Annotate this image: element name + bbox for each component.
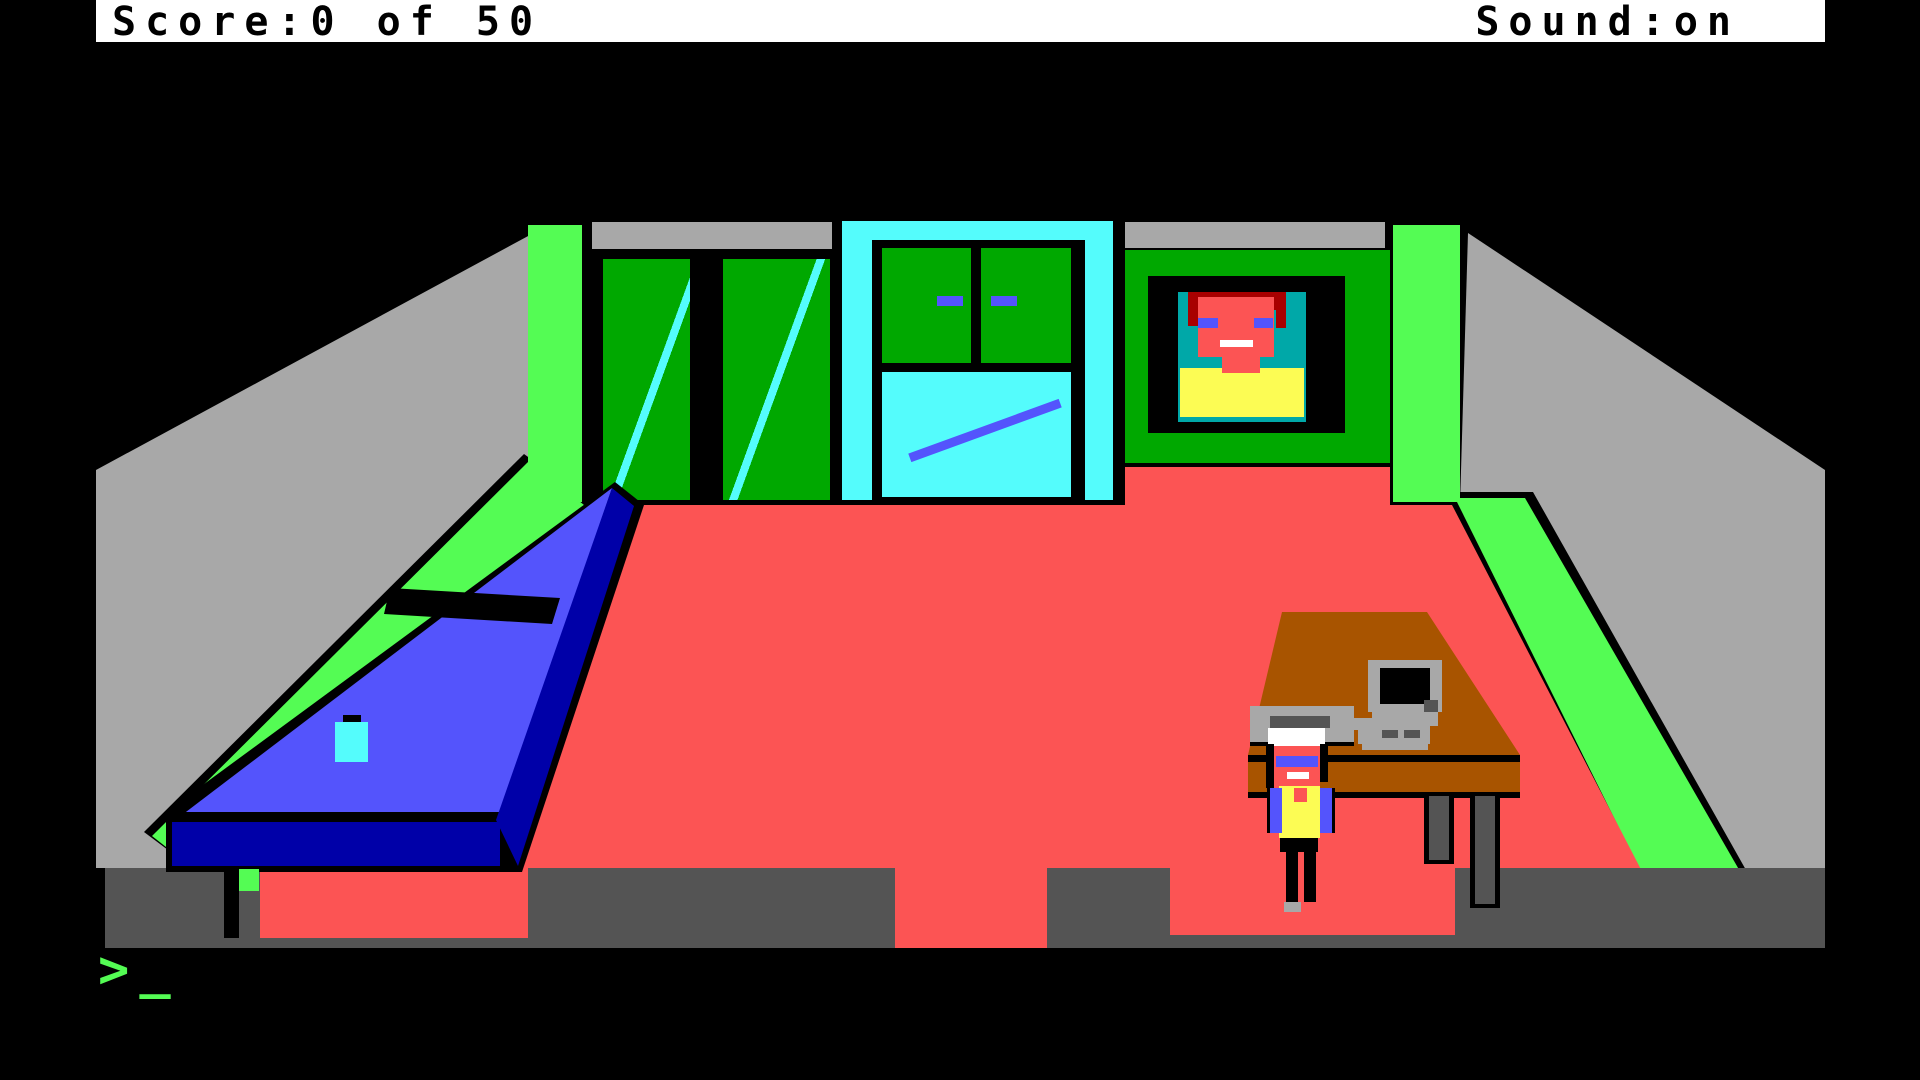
character-shorts <box>1280 838 1318 852</box>
portrait-mouth <box>1220 340 1253 347</box>
game-screen: >_ Score:0 of 50 Sound:on <box>0 0 1920 1080</box>
bed-edge-line <box>170 812 504 822</box>
floor-apron-left <box>260 868 528 938</box>
character-hat <box>1268 728 1325 748</box>
keyboard-lip <box>1362 744 1428 750</box>
door-handle-left <box>937 296 963 306</box>
command-prompt[interactable]: >_ <box>98 942 171 1002</box>
sound-status: Sound:on <box>1475 0 1740 42</box>
portrait-hair-right <box>1276 292 1286 328</box>
right-pillar <box>1393 225 1460 502</box>
window-left <box>603 259 690 500</box>
portrait-chin <box>1222 357 1260 373</box>
computer-screen <box>1380 668 1430 704</box>
character-leg-left <box>1286 852 1298 903</box>
keyboard-keys <box>1382 730 1398 738</box>
portrait-glasses-left <box>1198 318 1218 328</box>
character-leg-right <box>1304 852 1316 902</box>
portrait-hair-left <box>1188 292 1198 326</box>
desk-leg-right-face <box>1475 796 1495 904</box>
door-handle-right <box>991 296 1017 306</box>
character-arm-left <box>1267 788 1282 833</box>
keyboard-keys <box>1404 730 1420 738</box>
portrait-lintel <box>1125 222 1385 248</box>
character-face <box>1274 746 1320 790</box>
baseboard-patch <box>239 869 259 891</box>
window-lintel <box>592 222 832 249</box>
prompt-symbol: > <box>98 940 129 1000</box>
character-neck <box>1294 788 1307 802</box>
portrait-shirt <box>1180 368 1304 417</box>
monitor-shadow <box>1424 700 1438 712</box>
monitor-base <box>1372 712 1438 726</box>
left-pillar <box>528 225 582 502</box>
bed-front-face <box>172 822 500 866</box>
window-right <box>723 259 830 500</box>
character-arm-right <box>1320 788 1335 833</box>
score-display: Score:0 of 50 <box>112 0 542 42</box>
floor-exit-south <box>895 868 1047 948</box>
character-shoe <box>1284 902 1301 912</box>
portrait-glasses-right <box>1254 318 1273 328</box>
printer-slot <box>1270 716 1330 728</box>
pillow <box>335 722 368 762</box>
prompt-cursor: _ <box>139 940 170 1000</box>
desk-leg-left-face <box>1429 796 1449 860</box>
bed-leg <box>224 866 239 938</box>
character-mouth <box>1287 772 1309 779</box>
status-bar: Score:0 of 50 Sound:on <box>96 0 1825 42</box>
character-hair-right <box>1320 744 1328 782</box>
character-hair-left <box>1266 744 1274 788</box>
character-glasses <box>1276 756 1318 767</box>
